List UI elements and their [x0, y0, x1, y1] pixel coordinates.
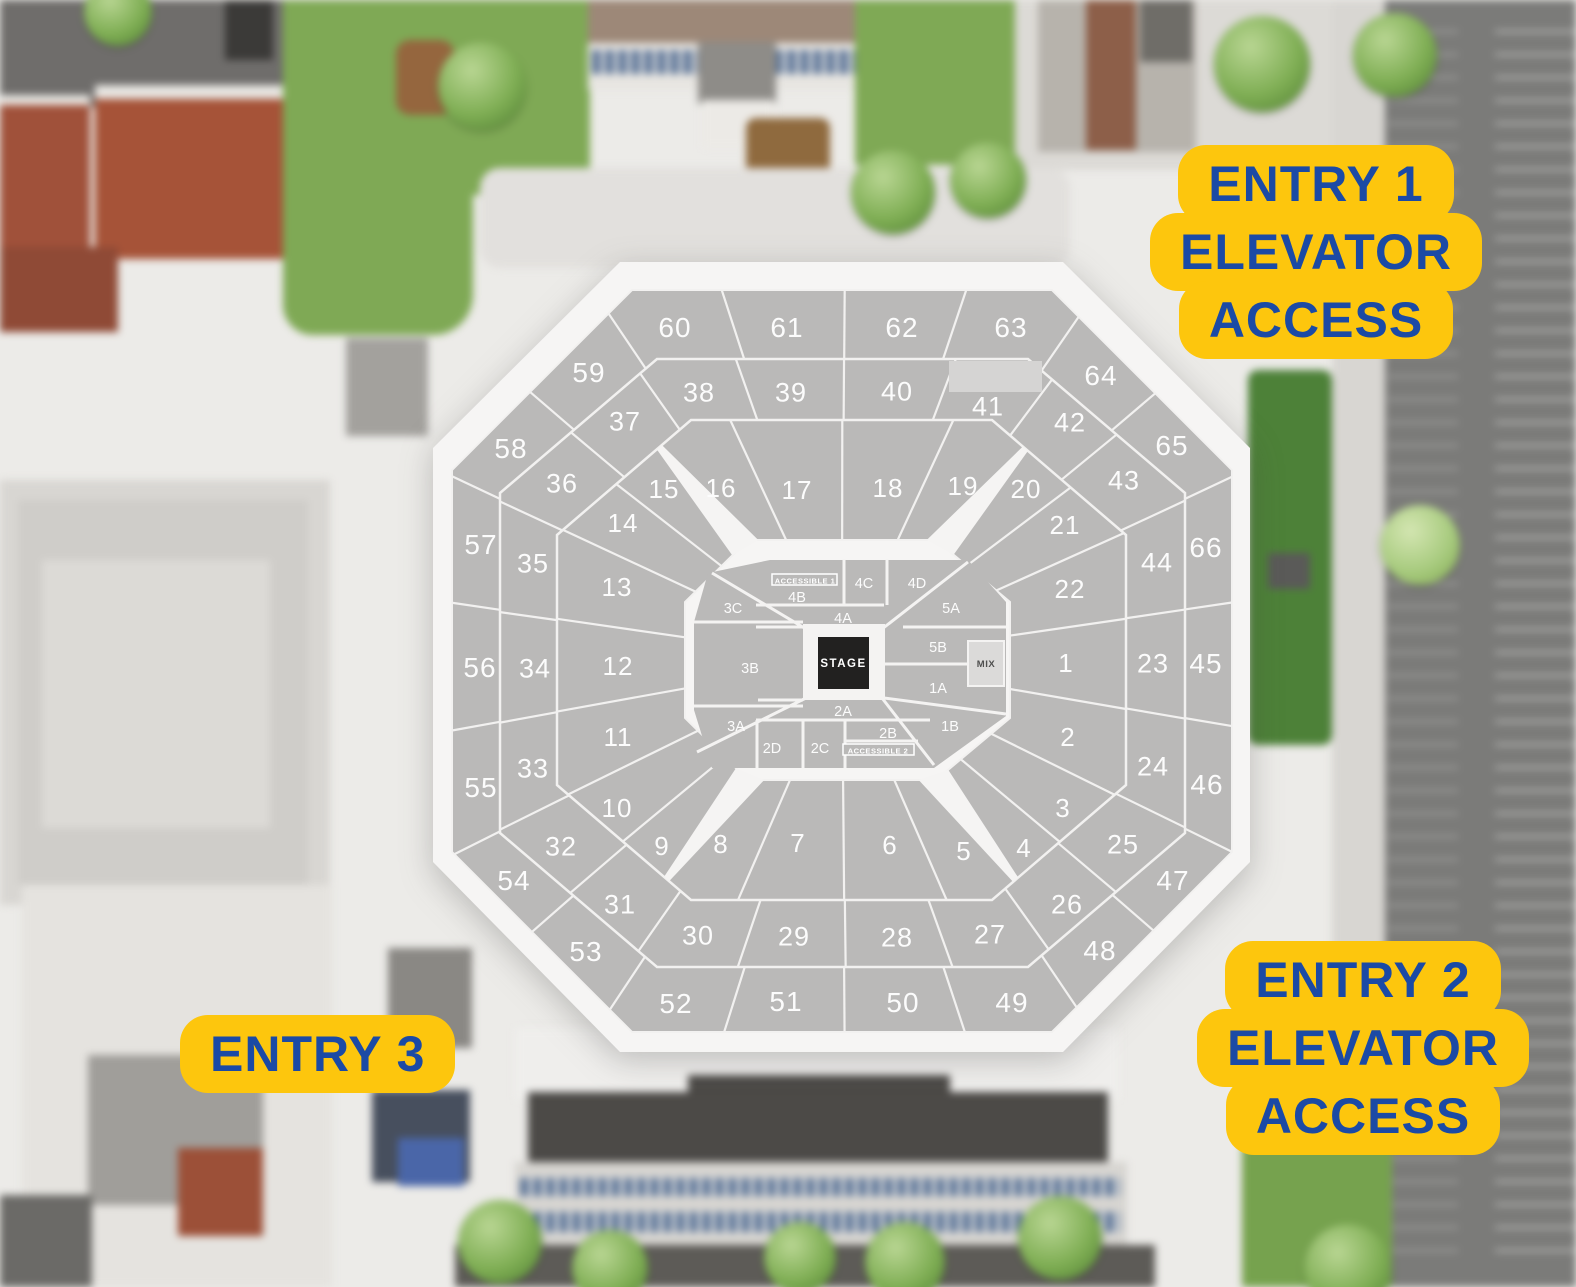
section-48[interactable]: 48 — [1083, 935, 1116, 966]
badge-text: ENTRY 3 — [210, 1026, 425, 1082]
section-65[interactable]: 65 — [1155, 430, 1188, 461]
section-29[interactable]: 29 — [778, 921, 810, 951]
section-9[interactable]: 9 — [654, 831, 669, 861]
section-53[interactable]: 53 — [569, 936, 602, 967]
badge-text: ACCESS — [1256, 1088, 1470, 1144]
section-49[interactable]: 49 — [995, 987, 1028, 1018]
section-35[interactable]: 35 — [517, 548, 549, 578]
section-6[interactable]: 6 — [882, 830, 897, 860]
section-54[interactable]: 54 — [497, 865, 530, 896]
section-divider — [843, 780, 844, 900]
floor-section-4c[interactable]: 4C — [855, 576, 874, 592]
badge-text: ENTRY 2 — [1255, 952, 1470, 1008]
section-23[interactable]: 23 — [1137, 648, 1169, 678]
section-28[interactable]: 28 — [881, 922, 913, 952]
section-41[interactable]: 41 — [972, 391, 1004, 421]
section-3[interactable]: 3 — [1055, 793, 1070, 823]
section-40[interactable]: 40 — [881, 376, 913, 406]
floor-section-2a[interactable]: 2A — [834, 704, 852, 720]
section-46[interactable]: 46 — [1190, 769, 1223, 800]
floor: STAGE MIX 3C4BACCESSIBLE 14C4D4A5A5B1A3B… — [694, 559, 1006, 768]
badge-text: ENTRY 1 — [1208, 156, 1423, 212]
entry-1-badge: ENTRY 1 ELEVATOR ACCESS — [1146, 150, 1486, 354]
section-34[interactable]: 34 — [519, 653, 551, 683]
floor-section-2b[interactable]: 2B — [879, 726, 897, 742]
floor-section-5a[interactable]: 5A — [942, 601, 960, 617]
section-15[interactable]: 15 — [649, 474, 680, 504]
section-58[interactable]: 58 — [494, 433, 527, 464]
section-61[interactable]: 61 — [770, 312, 803, 343]
section-57[interactable]: 57 — [464, 529, 497, 560]
section-1[interactable]: 1 — [1058, 648, 1073, 678]
section-37[interactable]: 37 — [609, 406, 641, 436]
section-13[interactable]: 13 — [602, 572, 633, 602]
section-20[interactable]: 20 — [1011, 474, 1042, 504]
badge-text: ACCESS — [1209, 292, 1423, 348]
section-56[interactable]: 56 — [463, 652, 496, 683]
section-24[interactable]: 24 — [1137, 751, 1169, 781]
section-36[interactable]: 36 — [546, 468, 578, 498]
floor-section-5b[interactable]: 5B — [929, 640, 947, 656]
stage-label: STAGE — [820, 658, 866, 670]
section-33[interactable]: 33 — [517, 753, 549, 783]
floor-section-4a[interactable]: 4A — [834, 611, 852, 627]
section-64[interactable]: 64 — [1084, 360, 1117, 391]
section-2[interactable]: 2 — [1060, 722, 1075, 752]
entry-2-line-3: ACCESS — [1226, 1077, 1500, 1155]
section-60[interactable]: 60 — [658, 312, 691, 343]
entry-1-line-2: ELEVATOR — [1150, 213, 1482, 291]
mix-label: MIX — [977, 659, 996, 670]
section-43[interactable]: 43 — [1108, 465, 1140, 495]
entry-2-line-1: ENTRY 2 — [1225, 941, 1500, 1019]
section-21[interactable]: 21 — [1050, 510, 1081, 540]
floor-section-accessible-1[interactable]: ACCESSIBLE 1 — [775, 577, 836, 586]
section-22[interactable]: 22 — [1055, 574, 1086, 604]
section-52[interactable]: 52 — [659, 988, 692, 1019]
section-42[interactable]: 42 — [1054, 407, 1086, 437]
section-17[interactable]: 17 — [782, 475, 813, 505]
section-4[interactable]: 4 — [1016, 833, 1031, 863]
floor-section-3c[interactable]: 3C — [724, 601, 743, 617]
section-18[interactable]: 18 — [873, 473, 904, 503]
floor-section-1b[interactable]: 1B — [941, 719, 959, 735]
section-divider — [844, 290, 845, 359]
section-44[interactable]: 44 — [1141, 547, 1173, 577]
section-5[interactable]: 5 — [956, 836, 971, 866]
floor-section-2c[interactable]: 2C — [811, 741, 830, 757]
section-66[interactable]: 66 — [1189, 532, 1222, 563]
section-27[interactable]: 27 — [974, 919, 1006, 949]
section-10[interactable]: 10 — [602, 793, 633, 823]
entry-2-line-2: ELEVATOR — [1197, 1009, 1529, 1087]
entry-2-badge: ENTRY 2 ELEVATOR ACCESS — [1190, 946, 1536, 1150]
section-38[interactable]: 38 — [683, 377, 715, 407]
suite-box — [949, 361, 1042, 392]
badge-text: ELEVATOR — [1227, 1020, 1499, 1076]
floor-section-accessible-2[interactable]: ACCESSIBLE 2 — [848, 747, 909, 756]
section-63[interactable]: 63 — [994, 312, 1027, 343]
section-31[interactable]: 31 — [604, 889, 636, 919]
section-45[interactable]: 45 — [1189, 648, 1222, 679]
section-16[interactable]: 16 — [706, 473, 737, 503]
floor-section-2d[interactable]: 2D — [763, 741, 782, 757]
floor-section-4d[interactable]: 4D — [908, 576, 927, 592]
section-30[interactable]: 30 — [682, 920, 714, 950]
floor-section-1a[interactable]: 1A — [929, 681, 947, 697]
section-55[interactable]: 55 — [464, 772, 497, 803]
section-divider — [845, 900, 846, 967]
entry-1-line-1: ENTRY 1 — [1178, 145, 1453, 223]
floor-section-3a[interactable]: 3A — [727, 719, 745, 735]
badge-text: ELEVATOR — [1180, 224, 1452, 280]
venue-map-page: STAGE MIX 3C4BACCESSIBLE 14C4D4A5A5B1A3B… — [0, 0, 1576, 1287]
section-51[interactable]: 51 — [769, 986, 802, 1017]
section-11[interactable]: 11 — [604, 722, 633, 752]
floor-section-3b[interactable]: 3B — [741, 661, 759, 677]
section-50[interactable]: 50 — [886, 987, 919, 1018]
entry-3-badge: ENTRY 3 — [180, 1020, 455, 1088]
section-39[interactable]: 39 — [775, 377, 807, 407]
section-32[interactable]: 32 — [545, 831, 577, 861]
entry-3-line-1: ENTRY 3 — [180, 1015, 455, 1093]
section-25[interactable]: 25 — [1107, 829, 1139, 859]
section-62[interactable]: 62 — [885, 312, 918, 343]
section-47[interactable]: 47 — [1156, 865, 1189, 896]
section-19[interactable]: 19 — [948, 471, 979, 501]
floor-section-4b[interactable]: 4B — [788, 590, 806, 606]
section-59[interactable]: 59 — [572, 357, 605, 388]
section-14[interactable]: 14 — [608, 508, 639, 538]
section-8[interactable]: 8 — [713, 829, 728, 859]
section-26[interactable]: 26 — [1051, 889, 1083, 919]
section-12[interactable]: 12 — [603, 651, 634, 681]
section-7[interactable]: 7 — [790, 828, 805, 858]
entry-1-line-3: ACCESS — [1179, 281, 1453, 359]
